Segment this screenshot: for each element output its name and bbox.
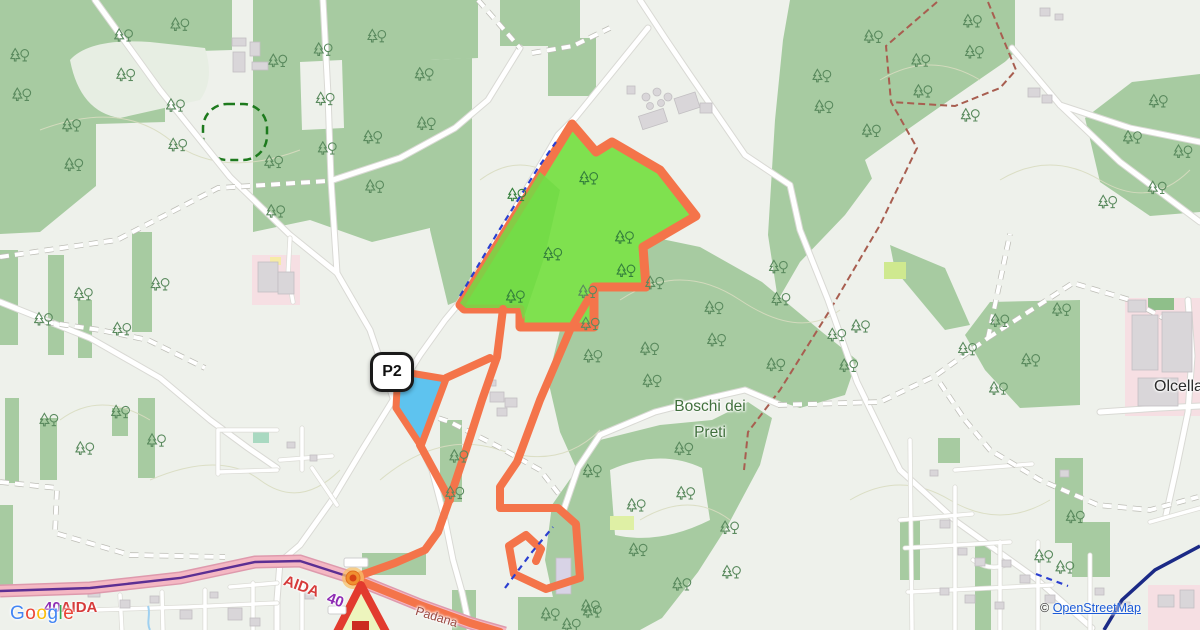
google-logo-letter: G (10, 603, 25, 624)
map-attribution: © OpenStreetMap (1040, 601, 1141, 615)
forest-label-line1: Boschi dei (645, 394, 775, 420)
google-logo-letter: e (63, 603, 74, 624)
google-logo-letter: g (47, 603, 58, 624)
p2-marker[interactable]: P2 (370, 352, 414, 392)
forest-label-line2: Preti (645, 420, 775, 446)
google-logo-letter: o (25, 603, 36, 624)
map-canvas[interactable]: Boschi dei Preti Olcella 40AIDA AIDA 40 … (0, 0, 1200, 630)
copyright-symbol: © (1040, 601, 1049, 615)
google-logo-letter: o (36, 603, 47, 624)
map-tiles (0, 0, 1200, 630)
village-label: Olcella (1154, 378, 1200, 396)
forest-label: Boschi dei Preti (645, 394, 775, 447)
google-logo[interactable]: Google (10, 603, 74, 625)
openstreetmap-link[interactable]: OpenStreetMap (1053, 601, 1141, 615)
